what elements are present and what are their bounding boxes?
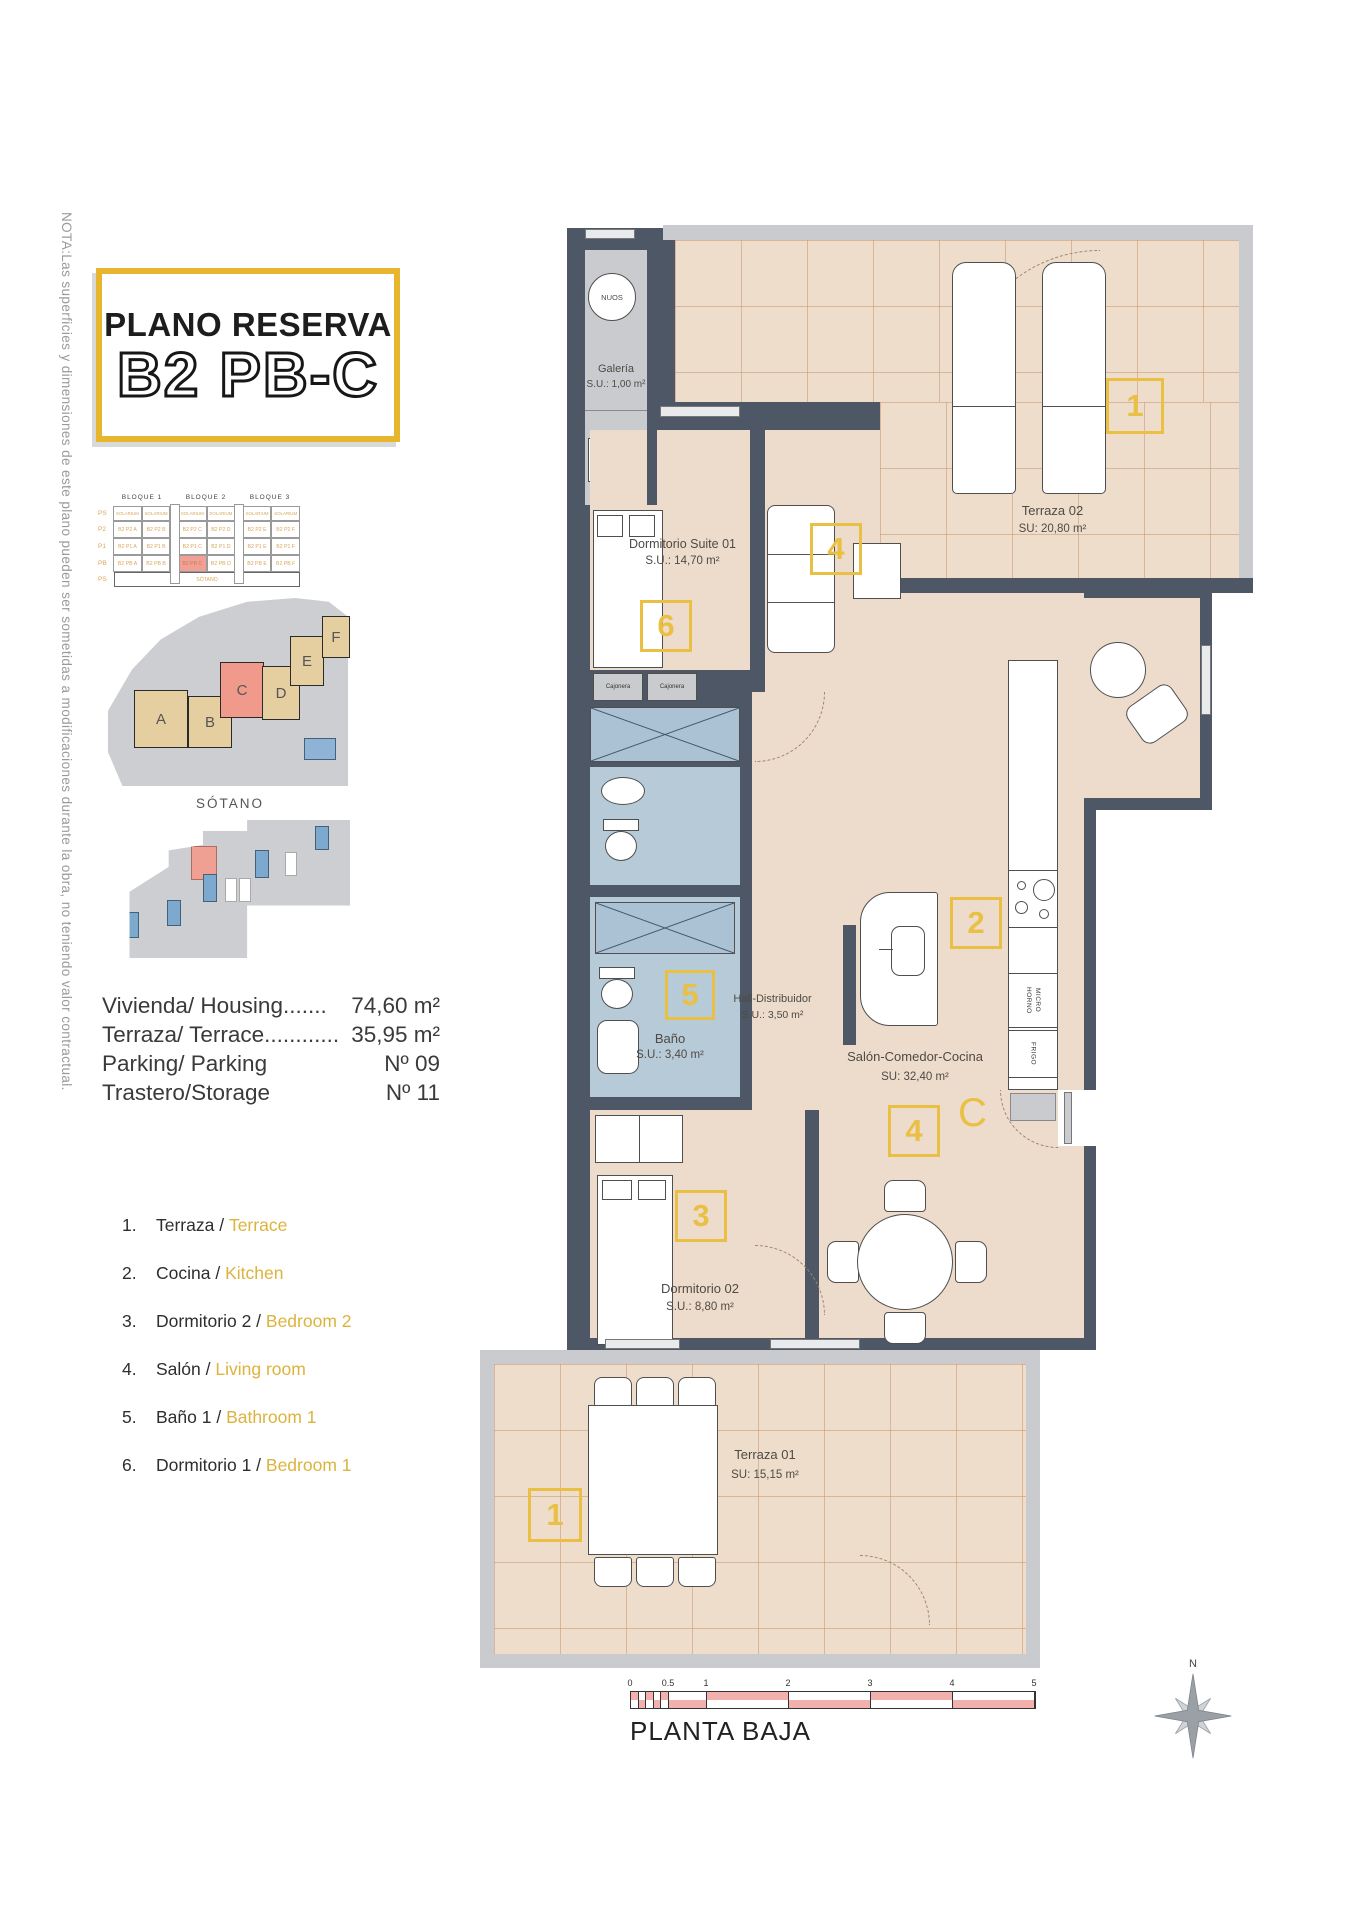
bathroom-badge: 5 [665,970,715,1020]
scale-segment [646,1700,654,1708]
x-lines-icon [591,708,739,761]
fridge-label: FRIGO [1030,1042,1037,1065]
wall [843,925,856,1045]
legend-spanish: Salón [156,1359,201,1380]
legend-item: 4.Salón / Living room [122,1359,432,1380]
unit-cell: B2 P1 E [243,538,272,555]
legend-english: Terrace [229,1215,287,1236]
terrace-chair [636,1377,674,1407]
terrace-parapet [1239,228,1253,578]
pillow [597,515,623,537]
dining-chair [884,1312,926,1344]
dining-badge: 4 [888,1105,940,1157]
living-room-badge: 4 [810,523,862,575]
window [585,229,635,239]
north-label: N [1148,1658,1238,1670]
margin-note: NOTA:Las superficies y dimensiones de es… [52,212,74,1652]
stair-tower [234,504,244,584]
area-value: Nº 09 [384,1049,440,1078]
basement-shape [105,820,350,958]
scale-tick-label: 3 [867,1678,872,1688]
bed-02 [597,1175,673,1345]
site-block-f: F [322,616,350,658]
scale-tick-label: 4 [949,1678,954,1688]
terrace-chair [678,1377,716,1407]
legend-english: Living room [215,1359,305,1380]
dining-chair [827,1241,859,1283]
terrace-chair [636,1557,674,1587]
basement-blue-cell [123,912,139,938]
scale-row [631,1692,1035,1700]
toilet-tank [603,819,639,831]
scale-segment [639,1700,647,1708]
window [770,1339,860,1349]
areas-summary: Vivienda/ Housing.......74,60 m²Terraza/… [102,991,440,1107]
unit-cell: B2 P1 B [142,538,171,555]
legend-separator: / [251,1455,266,1476]
block-table-row: P2B2 P2 AB2 P2 BB2 P2 CB2 P2 DB2 P2 EB2 … [98,521,300,538]
oven-microwave: HORNO MICRO [1008,973,1058,1028]
unit-cell: SOLARIUM [271,506,300,521]
scale-segment [953,1700,1035,1708]
hall-area: S.U.: 3,50 m² [715,1009,830,1021]
site-block-a: A [134,690,188,748]
scale-segment [669,1700,707,1708]
pillow [602,1180,632,1200]
unit-cell: B2 PB A [113,555,142,572]
cajonera-label: Cajonera [660,684,684,690]
legend-item: 5.Baño 1 / Bathroom 1 [122,1407,432,1428]
scale-segment [654,1700,662,1708]
basement-plan: SÓTANO [105,790,350,960]
wall [865,578,1253,593]
wall [647,430,657,505]
legend-separator: / [201,1359,216,1380]
legend-english: Bedroom 2 [266,1311,352,1332]
scale-segment [707,1700,789,1708]
basement-blue-cell [203,874,217,902]
floor-plan: 1 Terraza 02 SU: 20,80 m² NUOS Galería S… [455,225,1255,1673]
site-block-label: F [331,629,340,646]
fridge: FRIGO [1008,1030,1058,1078]
window [605,1339,680,1349]
sink [601,777,645,805]
block-header-label: BLOQUE 3 [242,494,298,506]
pillow [638,1180,666,1200]
dining-table [857,1214,953,1310]
dining-chair [955,1241,987,1283]
terrace-parapet [663,225,1253,240]
parking-stall [285,852,297,876]
area-label: Parking/ Parking [102,1049,267,1078]
basement-blue-cell [167,900,181,926]
legend-spanish: Dormitorio 2 [156,1311,251,1332]
block-header-label: BLOQUE 2 [178,494,234,506]
site-block-label: E [302,653,312,670]
burner [1033,879,1055,901]
kitchen-badge: 2 [950,897,1002,949]
faucet [879,949,893,950]
legend-number: 1. [122,1215,156,1236]
pillow [629,515,655,537]
block-table-row: PSSOLARIUMSOLARIUMSOLARIUMSOLARIUMSOLARI… [98,506,300,521]
scale-segment [707,1692,789,1700]
living-room-area: SU: 32,40 m² [815,1071,1015,1083]
block-table-row: PSSÓTANO [98,572,300,587]
floor-label: PLANTA BAJA [630,1716,811,1747]
unit-cell: SOLARIUM [178,506,207,521]
sofa-cushion-line [768,602,834,603]
legend-number: 3. [122,1311,156,1332]
toilet [605,831,637,861]
scale-tick-label: 1 [703,1678,708,1688]
legend-english: Bedroom 1 [266,1455,352,1476]
entry-letter: C [958,1091,987,1136]
closet [595,1115,683,1163]
terrace-01-name: Terraza 01 [685,1447,845,1462]
scale-rows [630,1691,1036,1709]
wardrobe [590,707,740,762]
site-pool [304,738,336,760]
compass: N [1148,1658,1238,1773]
lounger-line [953,406,1015,407]
site-block-label: D [276,685,287,702]
water-heater: NUOS [588,273,636,321]
suite-badge: 6 [640,600,692,652]
scale-segment [953,1692,1035,1700]
block-header-label [98,494,114,506]
scale-segment [661,1700,669,1708]
scale-segment [639,1692,647,1700]
area-label: Vivienda/ Housing....... [102,991,327,1020]
closet-divider [639,1116,640,1162]
legend-separator: / [251,1311,266,1332]
scale-segment [669,1692,707,1700]
suite-area: S.U.: 14,70 m² [600,555,765,567]
terrace-01-badge: 1 [528,1488,582,1542]
terrace-02-badge: 1 [1106,378,1164,434]
unit-cell: B2 PB D [207,555,236,572]
legend-number: 2. [122,1263,156,1284]
sun-lounger [952,262,1016,494]
scale-segment [646,1692,654,1700]
bathroom-area: S.U.: 3,40 m² [615,1049,725,1061]
area-row: Terraza/ Terrace............35,95 m² [102,1020,440,1049]
legend-spanish: Terraza [156,1215,214,1236]
legend-spanish: Baño 1 [156,1407,211,1428]
scale-segment [871,1700,953,1708]
unit-cell: B2 PB C [178,555,207,572]
side-table [1090,642,1146,698]
basement-label: SÓTANO [165,796,295,811]
sun-lounger [1042,262,1106,494]
scale-row [631,1700,1035,1708]
area-value: 35,95 m² [351,1020,440,1049]
legend-item: 6.Dormitorio 1 / Bedroom 1 [122,1455,432,1476]
bathroom-name: Baño [615,1031,725,1046]
unit-cell: B2 P1 F [271,538,300,555]
scale-segment [661,1692,669,1700]
unit-cell: SOLARIUM [142,506,171,521]
block-header-label: BLOQUE 1 [114,494,170,506]
area-value: Nº 11 [386,1078,440,1107]
legend-english: Bathroom 1 [226,1407,316,1428]
legend-spanish: Dormitorio 1 [156,1455,251,1476]
area-row: Parking/ ParkingNº 09 [102,1049,440,1078]
burner [1039,909,1049,919]
terrace-chair [594,1557,632,1587]
plan-title: PLANO RESERVA [104,306,392,344]
terrace-01-area: SU: 15,15 m² [685,1469,845,1481]
bedroom-02-badge: 3 [675,1190,727,1242]
basement-blue-cell [315,826,329,850]
terrace-chair [594,1377,632,1407]
legend-spanish: Cocina [156,1263,210,1284]
level-label: PS [98,572,114,587]
cajonera-label: Cajonera [606,684,630,690]
entry-door-leaf [1064,1092,1072,1144]
scale-segment [871,1692,953,1700]
title-box: PLANO RESERVA B2 PB-C [96,268,400,442]
site-block-e: E [290,636,324,686]
scale-segment [631,1692,639,1700]
galeria-area: S.U.: 1,00 m² [573,379,659,390]
oven-label: HORNO [1025,987,1032,1014]
area-row: Vivienda/ Housing.......74,60 m² [102,991,440,1020]
toilet-tank [599,967,635,979]
page: NOTA:Las superficies y dimensiones de es… [0,0,1356,1920]
site-plan: A B C D E F [108,598,348,786]
water-heater-label: NUOS [601,293,623,302]
block-table-row: P1B2 P1 AB2 P1 BB2 P1 CB2 P1 DB2 P1 EB2 … [98,538,300,555]
unit-cell: B2 P2 F [271,521,300,538]
compass-rose-icon [1154,1670,1232,1762]
site-block-label: A [156,711,166,728]
site-block-label: B [205,714,215,731]
burner [1015,901,1028,914]
scale-segment [631,1700,639,1708]
scale-bar: 00.512345 [630,1678,1050,1718]
legend-item: 2.Cocina / Kitchen [122,1263,432,1284]
cajonera-right: Cajonera [647,673,697,701]
x-lines-icon [596,903,734,953]
unit-cell: B2 P1 A [113,538,142,555]
hob [1008,870,1058,928]
unit-cell: B2 P1 C [178,538,207,555]
scale-segment [789,1692,871,1700]
legend-english: Kitchen [225,1263,283,1284]
scale-tick-label: 5 [1031,1678,1036,1688]
terrace-chair [678,1557,716,1587]
parking-stall [239,878,251,902]
living-room-name: Salón-Comedor-Cocina [815,1049,1015,1064]
unit-cell: SOLARIUM [113,506,142,521]
site-block-c-highlighted: C [220,662,264,718]
bathtub [597,1020,639,1074]
suite-name: Dormitorio Suite 01 [600,537,765,551]
scale-tick-label: 0 [627,1678,632,1688]
terrace-02-name: Terraza 02 [965,503,1140,518]
parking-stall [225,878,237,902]
legend-list: 1.Terraza / Terrace2.Cocina / Kitchen3.D… [122,1215,432,1503]
scale-segment [654,1692,662,1700]
block-table-rows: PSSOLARIUMSOLARIUMSOLARIUMSOLARIUMSOLARI… [98,506,300,587]
level-label: PB [98,555,113,572]
lounger-line [1043,406,1105,407]
scale-tick-label: 2 [785,1678,790,1688]
scale-tick-label: 0.5 [662,1678,675,1688]
legend-item: 1.Terraza / Terrace [122,1215,432,1236]
partition-line [585,410,647,411]
unit-cell: B2 P2 A [113,521,142,538]
site-block-label: C [237,682,248,699]
burner [1017,881,1026,890]
kitchen-island [860,892,938,1026]
cajonera-left: Cajonera [593,673,643,701]
legend-separator: / [214,1215,229,1236]
island-sink [891,926,925,976]
legend-number: 6. [122,1455,156,1476]
area-label: Trastero/Storage [102,1078,270,1107]
window [1201,645,1211,715]
legend-number: 4. [122,1359,156,1380]
unit-cell: B2 PB E [243,555,272,572]
scale-segment [789,1700,871,1708]
unit-cell: B2 PB F [271,555,300,572]
dining-chair [884,1180,926,1212]
galeria-name: Galería [577,363,655,375]
block-table-row: PBB2 PB AB2 PB BB2 PB CB2 PB DB2 PB EB2 … [98,555,300,572]
unit-cell: B2 PB B [142,555,171,572]
unit-cell: B2 P2 E [243,521,272,538]
terrace-02-area: SU: 20,80 m² [965,523,1140,535]
stair-tower [170,504,180,584]
basement-cell: SÓTANO [114,572,300,587]
block-table-header: BLOQUE 1BLOQUE 2BLOQUE 3 [98,494,300,506]
basement-blue-cell [255,850,269,878]
unit-cell: B2 P2 C [178,521,207,538]
unit-cell: B2 P2 B [142,521,171,538]
area-row: Trastero/StorageNº 11 [102,1078,440,1107]
unit-cell: SOLARIUM [243,506,272,521]
shower [595,902,735,954]
unit-cell: B2 P1 D [207,538,236,555]
toilet [601,979,633,1009]
level-label: P2 [98,521,113,538]
level-label: PS [98,506,113,521]
level-label: P1 [98,538,113,555]
unit-code: B2 PB-C [117,348,379,404]
unit-cell: SOLARIUM [207,506,236,521]
block-table: BLOQUE 1BLOQUE 2BLOQUE 3 PSSOLARIUMSOLAR… [98,494,300,587]
window [660,406,740,417]
legend-number: 5. [122,1407,156,1428]
area-value: 74,60 m² [351,991,440,1020]
legend-separator: / [210,1263,225,1284]
unit-cell: B2 P2 D [207,521,236,538]
hall-name: Hall-Distribuidor [715,993,830,1005]
legend-separator: / [211,1407,226,1428]
legend-item: 3.Dormitorio 2 / Bedroom 2 [122,1311,432,1332]
area-label: Terraza/ Terrace............ [102,1020,339,1049]
microwave-label: MICRO [1034,988,1041,1012]
